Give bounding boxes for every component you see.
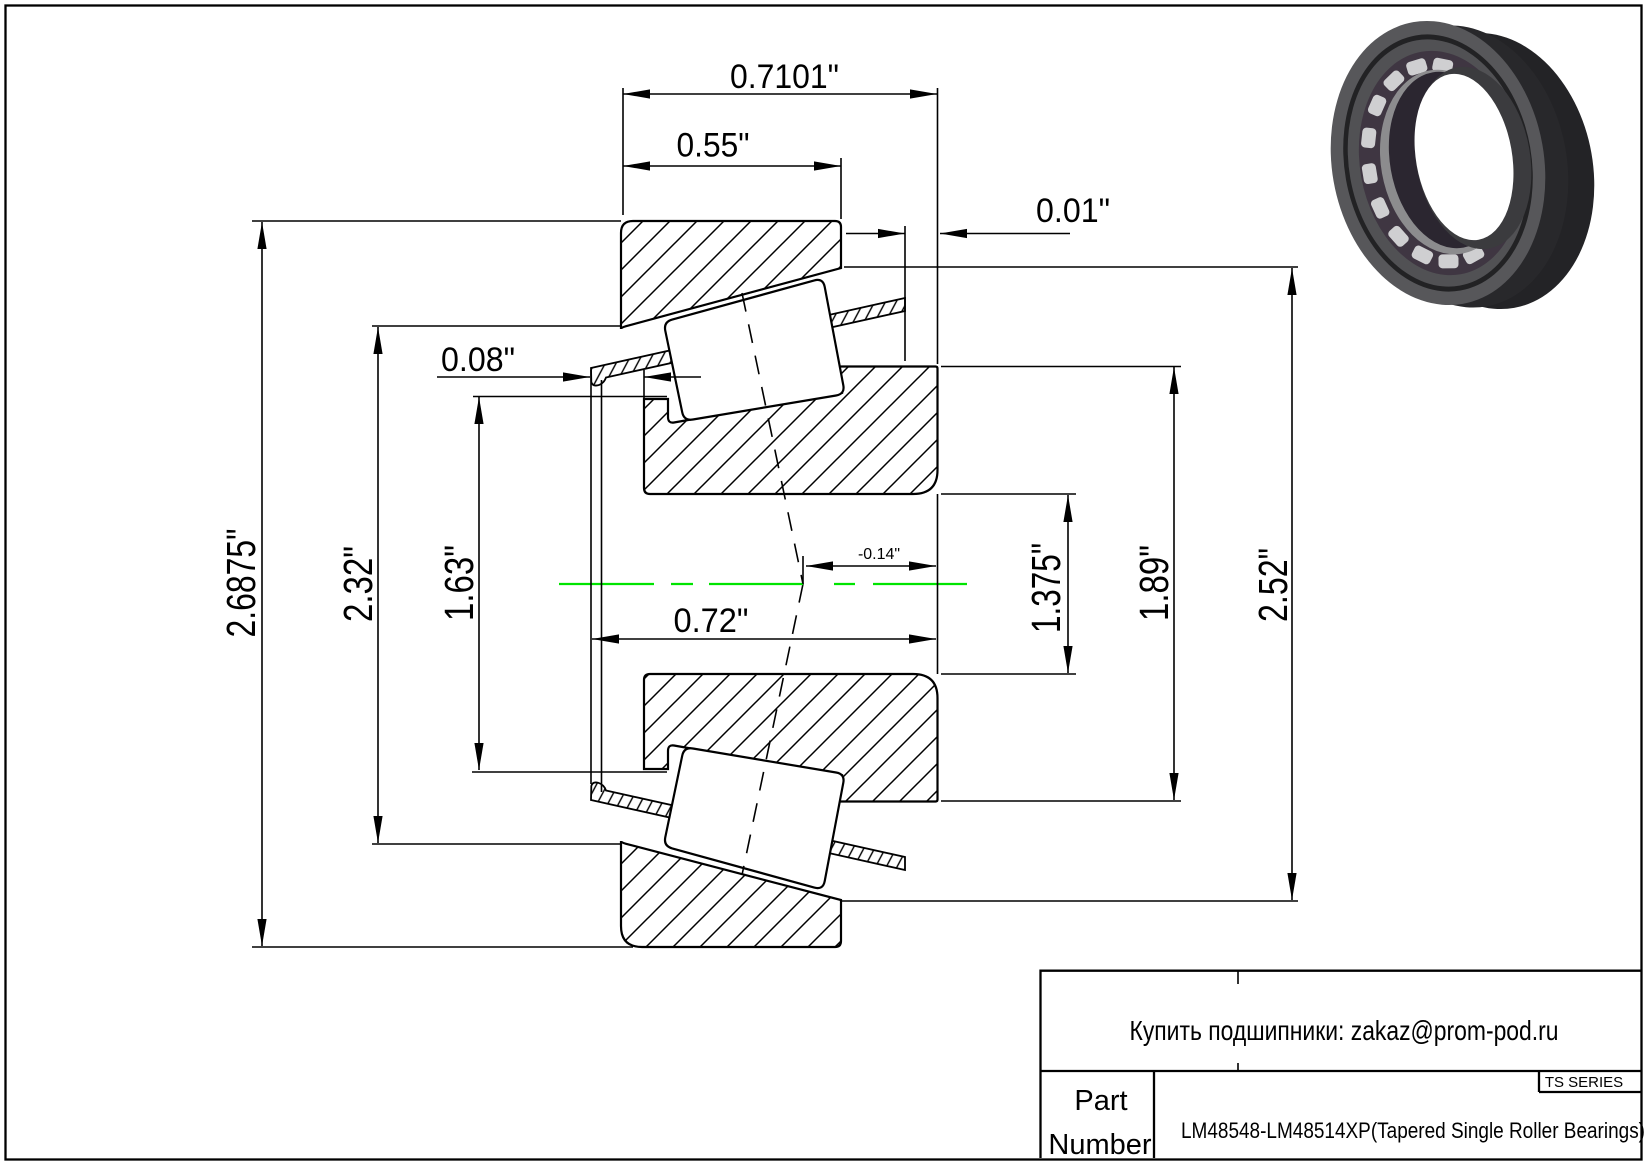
svg-text:2.52": 2.52": [1250, 548, 1296, 622]
svg-text:Number: Number: [1048, 1129, 1151, 1161]
svg-text:LM48548-LM48514XP(Tapered Sing: LM48548-LM48514XP(Tapered Single Roller …: [1181, 1118, 1645, 1143]
svg-text:1.375": 1.375": [1023, 543, 1069, 633]
svg-text:2.32": 2.32": [335, 546, 381, 622]
svg-text:-0.14": -0.14": [858, 546, 900, 563]
svg-text:Купить подшипники: zakaz@prom-: Купить подшипники: zakaz@prom-pod.ru: [1130, 1015, 1559, 1046]
svg-text:1.89": 1.89": [1131, 545, 1177, 621]
svg-text:0.55": 0.55": [677, 127, 750, 165]
svg-text:1.63": 1.63": [436, 545, 482, 621]
svg-text:TS SERIES: TS SERIES: [1545, 1074, 1623, 1091]
svg-text:Part: Part: [1074, 1085, 1127, 1117]
svg-text:0.7101": 0.7101": [730, 58, 839, 96]
svg-text:0.01": 0.01": [1036, 192, 1110, 230]
svg-text:0.72": 0.72": [674, 602, 749, 640]
svg-text:0.08": 0.08": [441, 341, 515, 379]
svg-text:2.6875": 2.6875": [218, 529, 264, 638]
